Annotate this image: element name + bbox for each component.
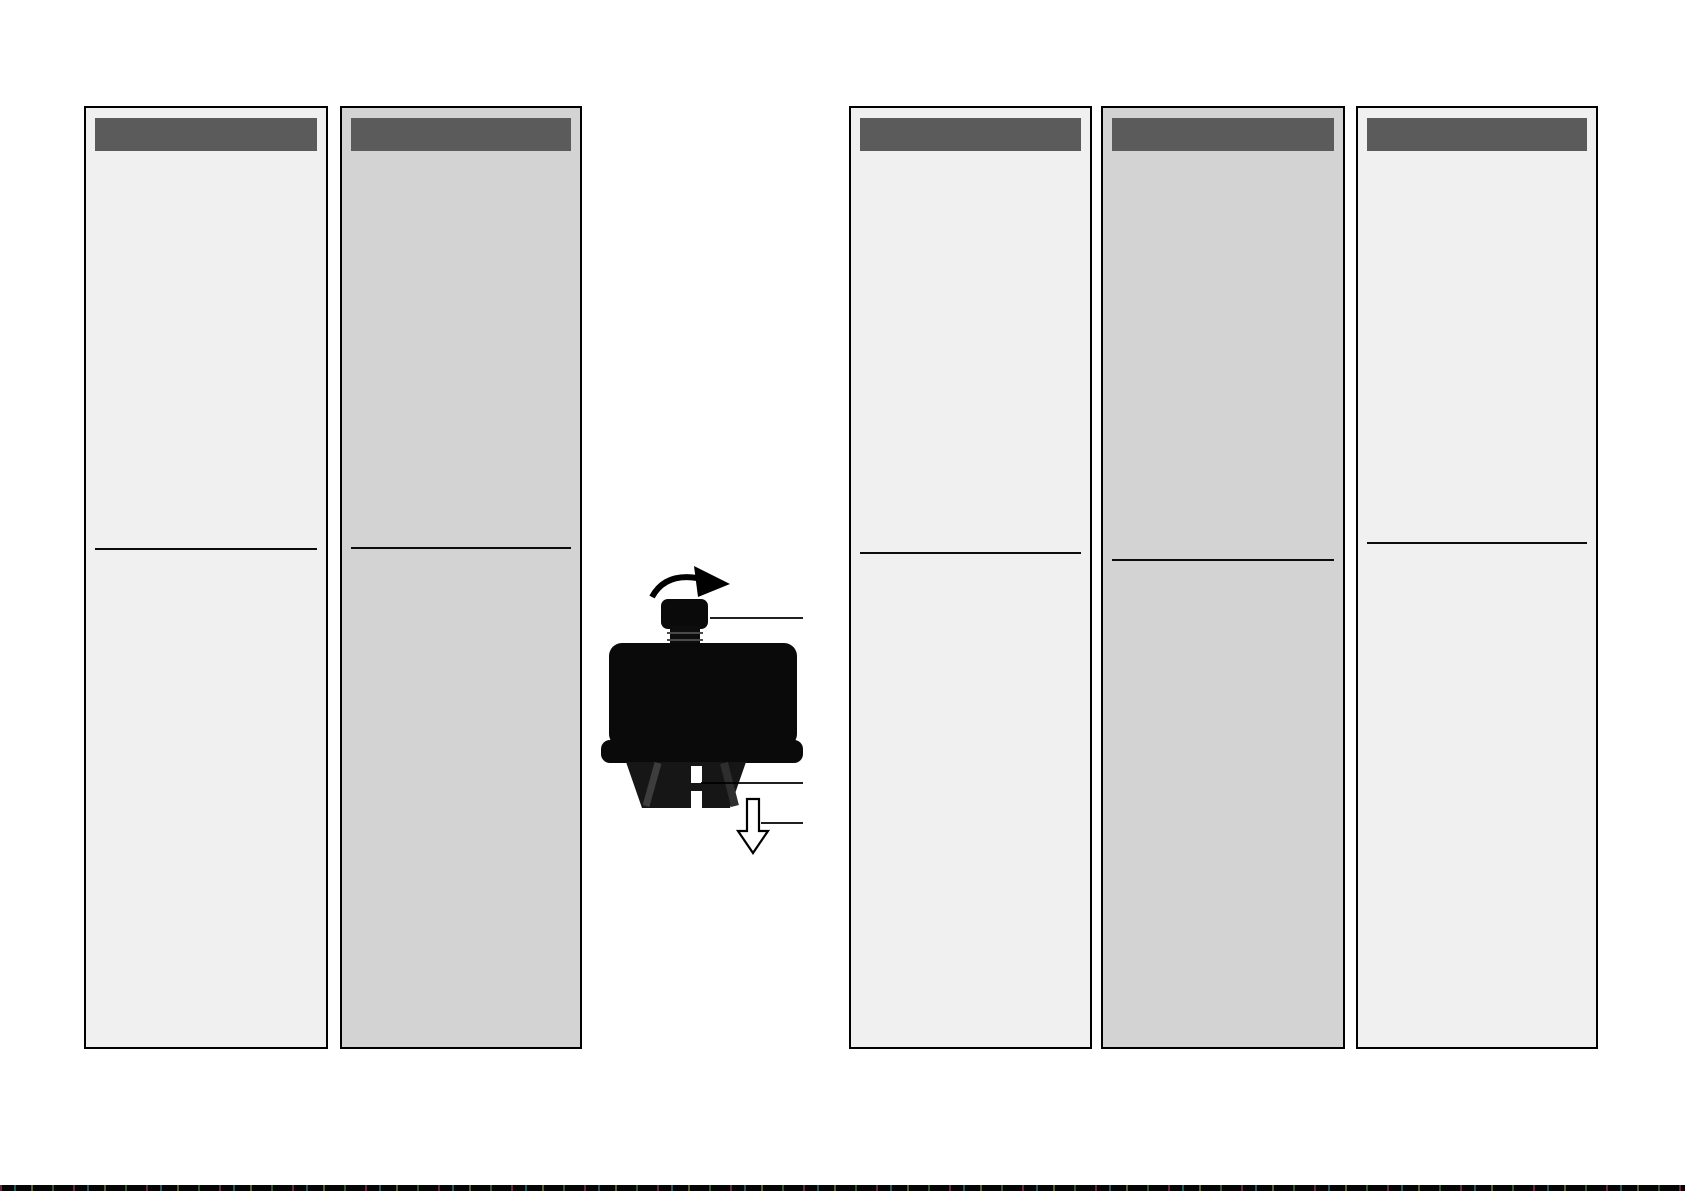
body-part (609, 643, 797, 747)
insert-down-arrow-icon (738, 799, 768, 853)
column-1-divider-rule (95, 548, 317, 550)
column-4-header-bar (1112, 118, 1334, 151)
column-2-header-bar (351, 118, 571, 151)
column-3 (849, 106, 1092, 1049)
column-3-divider-rule (860, 552, 1081, 554)
rotate-clockwise-arrow-icon (652, 566, 730, 597)
bottom-edge-strip (0, 1185, 1685, 1191)
column-2-divider-rule (351, 547, 571, 549)
column-2 (340, 106, 582, 1049)
knob-part (661, 599, 708, 629)
fastener-illustration (595, 560, 810, 860)
column-4 (1101, 106, 1345, 1049)
flange-part (601, 740, 803, 763)
column-5 (1356, 106, 1598, 1049)
column-3-header-bar (860, 118, 1081, 151)
column-1-header-bar (95, 118, 317, 151)
expansion-legs-part (626, 762, 746, 812)
column-4-divider-rule (1112, 559, 1334, 561)
column-5-divider-rule (1367, 542, 1587, 544)
leaflet-page (0, 0, 1685, 1191)
column-5-header-bar (1367, 118, 1587, 151)
column-1 (84, 106, 328, 1049)
